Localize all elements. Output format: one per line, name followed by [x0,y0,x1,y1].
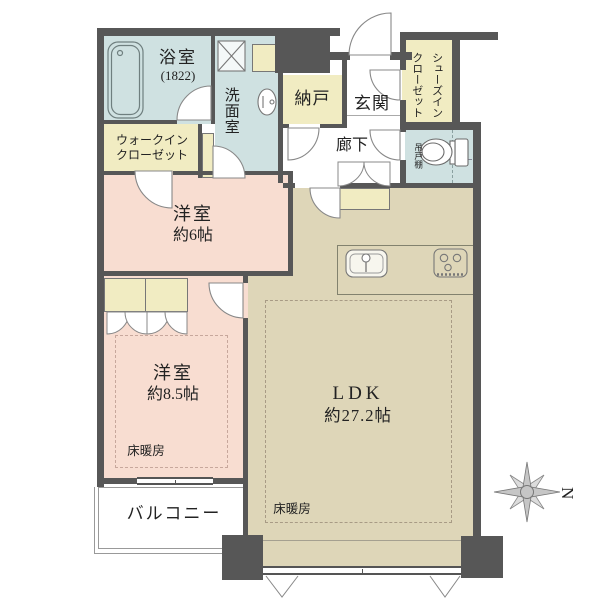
compass-north-label: N [558,487,577,499]
bedroom6-size: 約6帖 [148,226,238,246]
bedroom6-name: 洋室 [148,203,238,226]
bedroom6-label: 洋室 約6帖 [148,203,238,246]
bifold-door-4 [165,312,187,334]
door-swing-ldk [310,188,340,218]
hanging-cupboard-label: 吊戸棚 [413,135,424,177]
double-door-left [338,162,364,186]
bedroom85-label: 洋室 約8.5帖 [128,362,218,405]
hallway-label: 廊下 [328,136,376,156]
washroom-label: 洗面室 [221,78,240,144]
door-swing-storage [288,128,319,160]
toilet-icon [420,139,468,166]
double-door-right [364,162,390,186]
floor-heating-label-ldk: 床暖房 [264,502,320,518]
bedroom85-size: 約8.5帖 [128,385,218,405]
compass-rose-icon: N [494,462,577,522]
kitchen-sink-icon [346,250,387,277]
walk-in-closet-label: ウォークイン クローゼット [102,133,202,163]
stove-icon [434,249,467,277]
shoes-in-closet-label: シューズイン クローゼット [406,45,446,125]
bathroom-label: 浴室 (1822) [146,47,210,85]
bathroom-name: 浴室 [146,47,210,68]
door-swing-entrance [349,13,391,55]
floor-plan: N 浴室 (1822) 洗面室 ウォークイン クローゼット 納戸 玄関 廊下 シ… [0,0,600,600]
washbasin-icon [258,89,276,115]
casement-swing-left [266,576,298,597]
wic-line1: ウォークイン [102,133,202,148]
floor-heating-label-bedroom: 床暖房 [118,444,174,460]
ldk-size: 約27.2帖 [306,406,410,427]
bifold-door-2 [125,312,147,334]
bathtub-icon [108,42,143,118]
door-swing-washroom [213,146,245,178]
washing-machine-icon [218,41,245,71]
ldk-label: LDK 約27.2帖 [306,382,410,426]
ldk-name: LDK [306,382,410,406]
bedroom85-name: 洋室 [128,362,218,385]
entrance-label: 玄関 [342,93,402,114]
wic-line2: クローゼット [102,148,202,163]
bathroom-size: (1822) [146,68,210,84]
sic-line1: シューズイン [426,45,446,125]
storage-label: 納戸 [283,88,342,109]
balcony-label: バルコニー [126,503,222,524]
door-swing-bathroom [177,86,211,120]
door-swing-bedroom85 [209,283,243,318]
sic-line2: クローゼット [406,45,426,125]
casement-swing-right [430,576,460,597]
